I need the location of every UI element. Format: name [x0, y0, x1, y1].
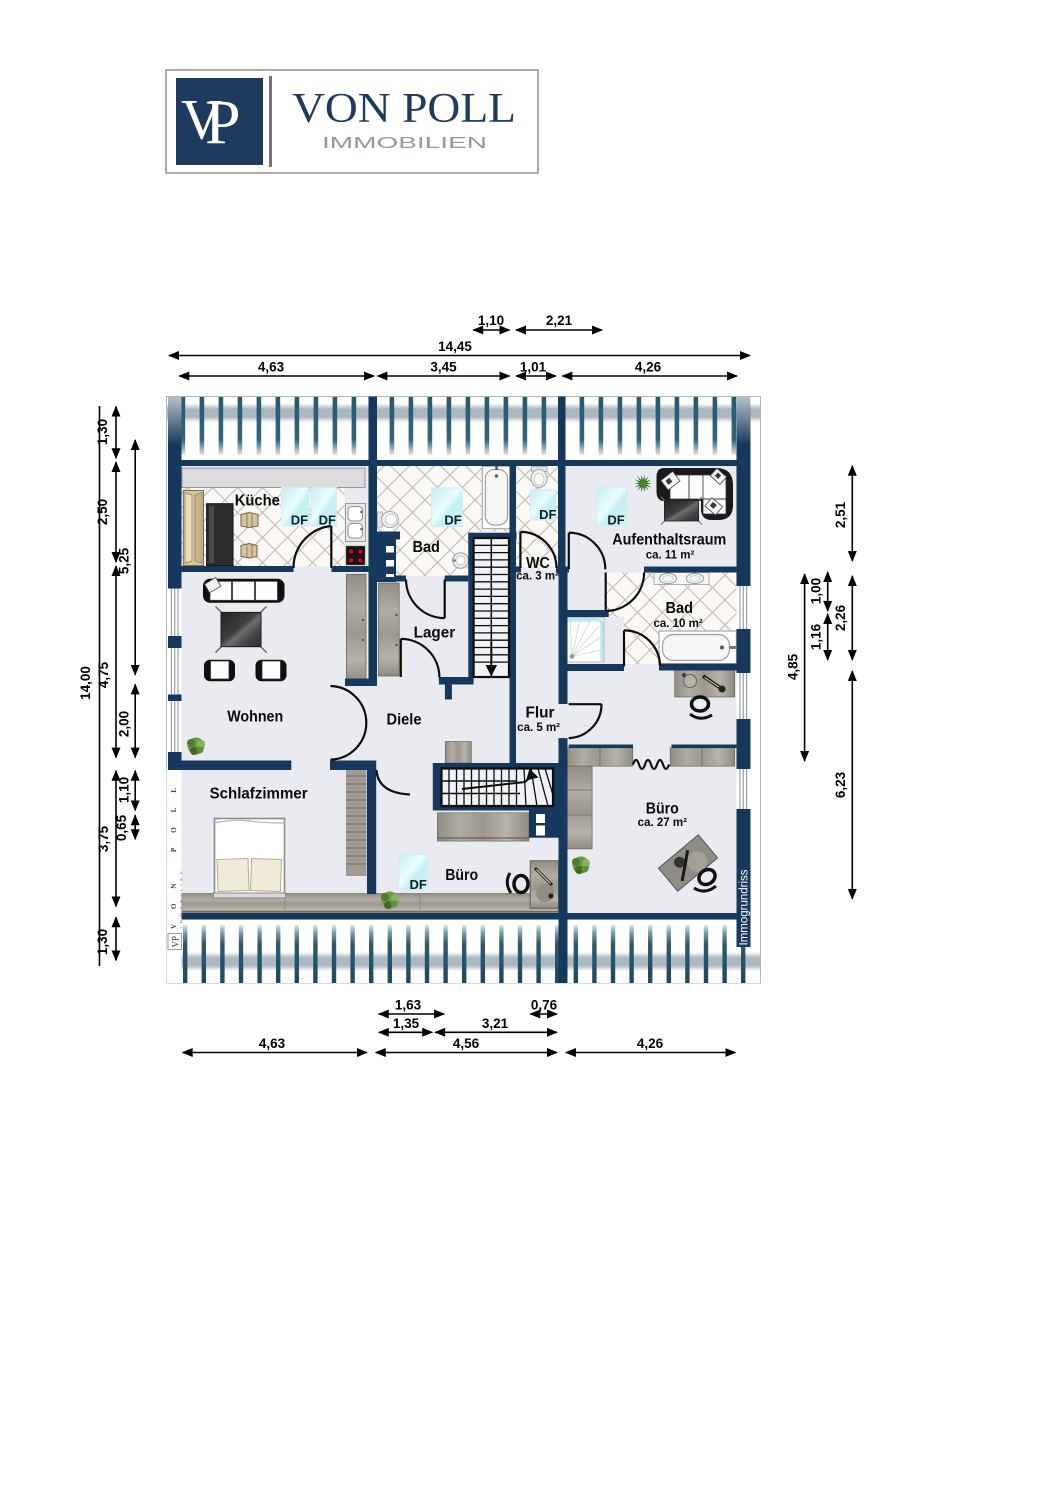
- svg-text:DF: DF: [319, 513, 336, 528]
- svg-text:2,21: 2,21: [546, 313, 573, 328]
- svg-text:Küche: Küche: [235, 493, 280, 510]
- svg-text:1,63: 1,63: [395, 998, 422, 1013]
- svg-text:Aufenthaltsraum: Aufenthaltsraum: [612, 532, 726, 549]
- svg-text:Bad: Bad: [666, 600, 694, 617]
- svg-text:ca. 27 m²: ca. 27 m²: [638, 817, 687, 829]
- svg-text:1,10: 1,10: [117, 777, 132, 803]
- svg-text:ca. 5 m²: ca. 5 m²: [517, 722, 560, 734]
- svg-text:14,45: 14,45: [438, 339, 472, 354]
- svg-text:Büro: Büro: [445, 867, 478, 884]
- svg-text:1,01: 1,01: [520, 360, 547, 375]
- svg-text:1,35: 1,35: [393, 1016, 420, 1031]
- svg-text:0,65: 0,65: [114, 814, 129, 841]
- svg-text:2,50: 2,50: [95, 499, 110, 525]
- svg-text:5,25: 5,25: [117, 547, 132, 574]
- svg-text:4,85: 4,85: [786, 653, 801, 680]
- svg-text:1,16: 1,16: [809, 623, 824, 650]
- svg-text:2,26: 2,26: [833, 604, 848, 631]
- svg-text:DF: DF: [410, 877, 427, 892]
- svg-text:4,63: 4,63: [258, 360, 285, 375]
- svg-text:1,00: 1,00: [809, 578, 824, 604]
- svg-text:VP: VP: [171, 936, 181, 948]
- svg-text:6,23: 6,23: [833, 771, 848, 798]
- svg-text:Immogrundriss: Immogrundriss: [739, 869, 751, 945]
- svg-text:1,10: 1,10: [478, 313, 504, 328]
- svg-text:3,21: 3,21: [482, 1016, 509, 1031]
- svg-text:Flur: Flur: [526, 705, 555, 722]
- svg-text:4,26: 4,26: [637, 1036, 664, 1051]
- svg-text:DF: DF: [291, 513, 308, 528]
- svg-text:ca. 11 m²: ca. 11 m²: [646, 550, 695, 562]
- svg-text:Diele: Diele: [387, 712, 422, 729]
- svg-text:IMMOBILIEN: IMMOBILIEN: [322, 135, 487, 152]
- svg-text:4,63: 4,63: [259, 1036, 286, 1051]
- svg-text:IMMOBILIEN: IMMOBILIEN: [180, 870, 184, 928]
- svg-text:Büro: Büro: [646, 801, 679, 818]
- svg-text:2,00: 2,00: [117, 711, 132, 737]
- svg-text:ca. 3 m²: ca. 3 m²: [516, 571, 559, 583]
- svg-text:Schlafzimmer: Schlafzimmer: [210, 786, 308, 803]
- svg-text:0,76: 0,76: [531, 998, 558, 1013]
- svg-text:VON POLL: VON POLL: [292, 86, 516, 132]
- svg-text:1,30: 1,30: [95, 929, 110, 955]
- svg-text:ca. 10 m²: ca. 10 m²: [653, 618, 702, 630]
- svg-text:14,00: 14,00: [78, 666, 93, 700]
- svg-text:WC: WC: [526, 555, 550, 572]
- svg-text:DF: DF: [539, 507, 556, 522]
- svg-text:3,75: 3,75: [96, 825, 111, 852]
- svg-text:2,51: 2,51: [833, 501, 848, 528]
- svg-text:4,75: 4,75: [96, 661, 111, 688]
- svg-text:4,26: 4,26: [635, 360, 662, 375]
- svg-text:Wohnen: Wohnen: [227, 709, 283, 726]
- svg-text:1,30: 1,30: [95, 419, 110, 445]
- svg-text:4,56: 4,56: [453, 1036, 480, 1051]
- svg-text:DF: DF: [444, 513, 461, 528]
- svg-text:3,45: 3,45: [430, 360, 457, 375]
- svg-text:Lager: Lager: [414, 625, 456, 642]
- svg-text:VON POLL: VON POLL: [170, 777, 178, 929]
- svg-text:P: P: [205, 87, 241, 158]
- svg-text:DF: DF: [607, 513, 624, 528]
- svg-text:Bad: Bad: [412, 539, 440, 556]
